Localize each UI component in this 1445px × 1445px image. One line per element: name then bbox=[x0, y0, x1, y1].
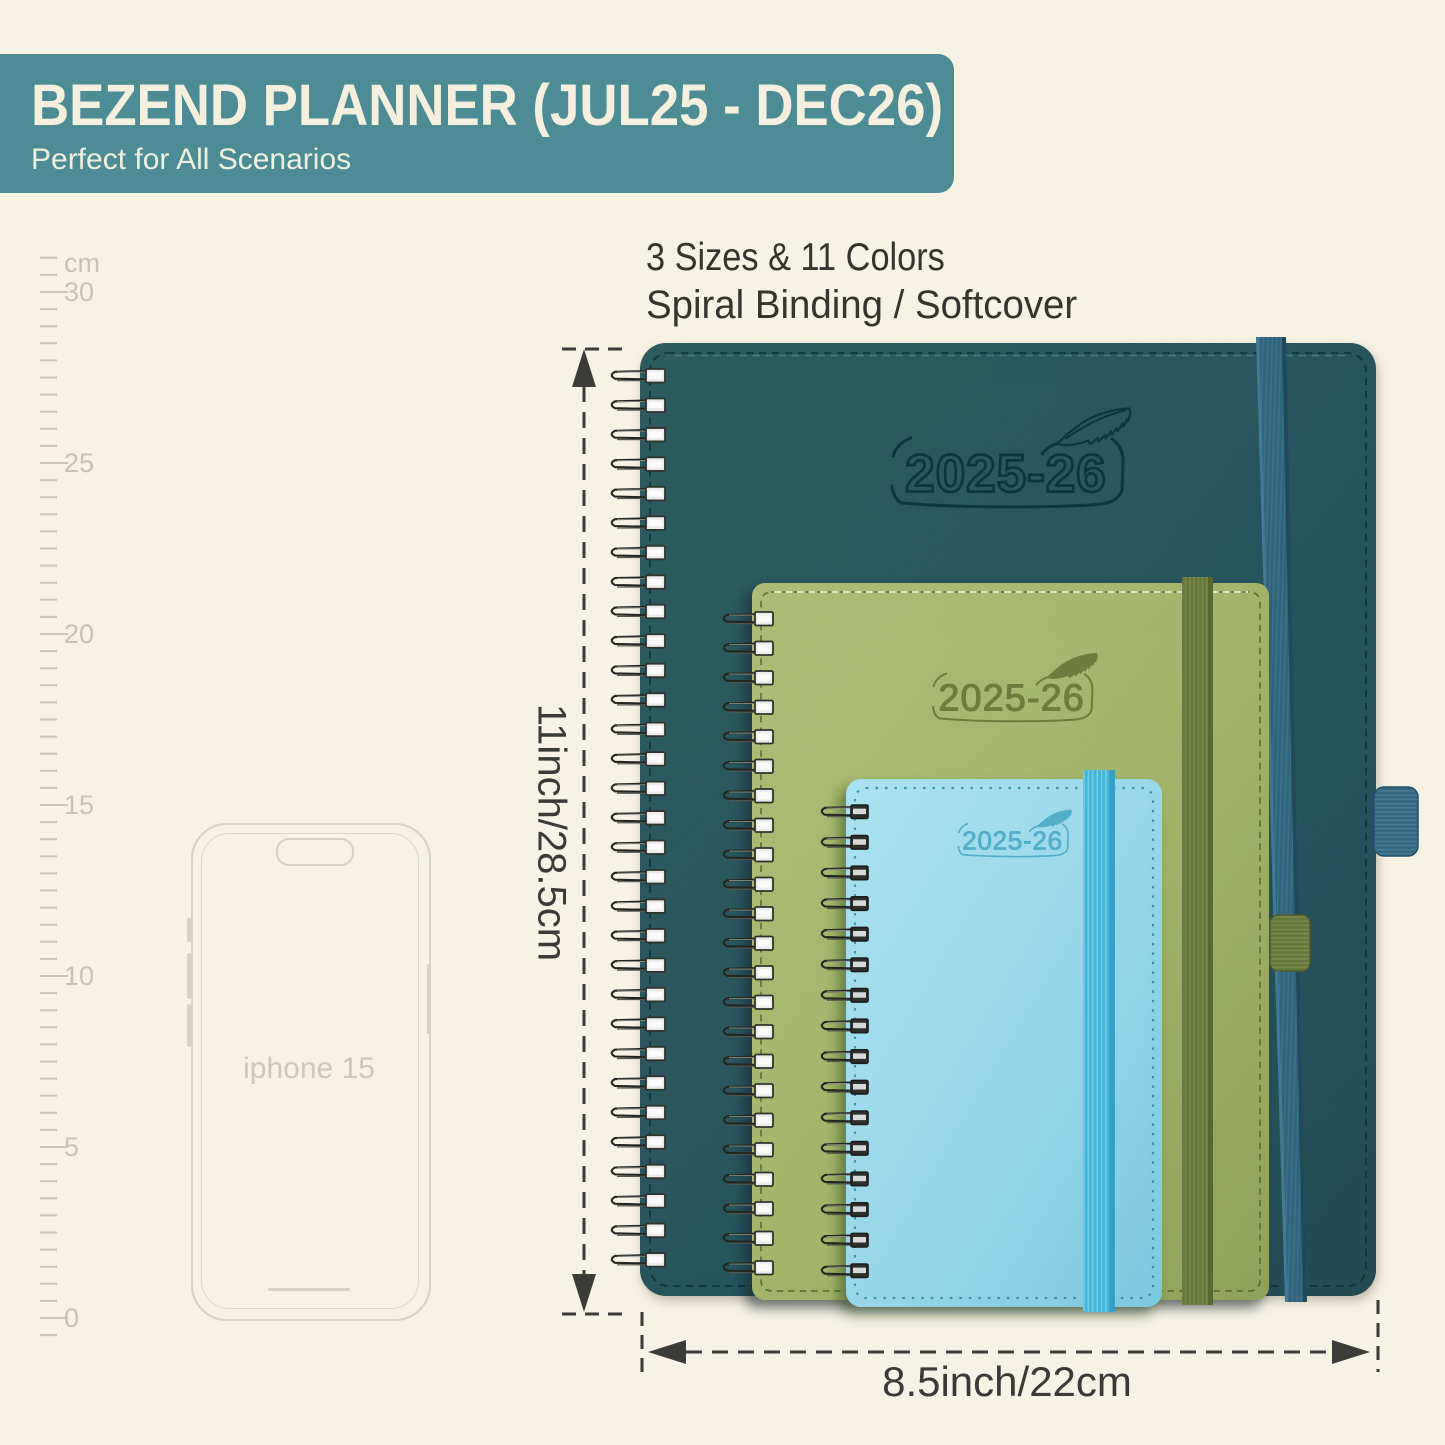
svg-text:25: 25 bbox=[64, 448, 94, 478]
svg-text:15: 15 bbox=[64, 790, 94, 820]
svg-text:10: 10 bbox=[64, 961, 94, 991]
svg-text:2025-26: 2025-26 bbox=[905, 445, 1107, 504]
svg-text:0: 0 bbox=[64, 1303, 79, 1333]
svg-text:cm: cm bbox=[64, 248, 100, 278]
svg-text:30: 30 bbox=[64, 277, 94, 307]
svg-text:2025-26: 2025-26 bbox=[938, 678, 1084, 720]
svg-text:5: 5 bbox=[64, 1132, 79, 1162]
svg-text:2025-26: 2025-26 bbox=[962, 825, 1063, 855]
svg-text:20: 20 bbox=[64, 619, 94, 649]
